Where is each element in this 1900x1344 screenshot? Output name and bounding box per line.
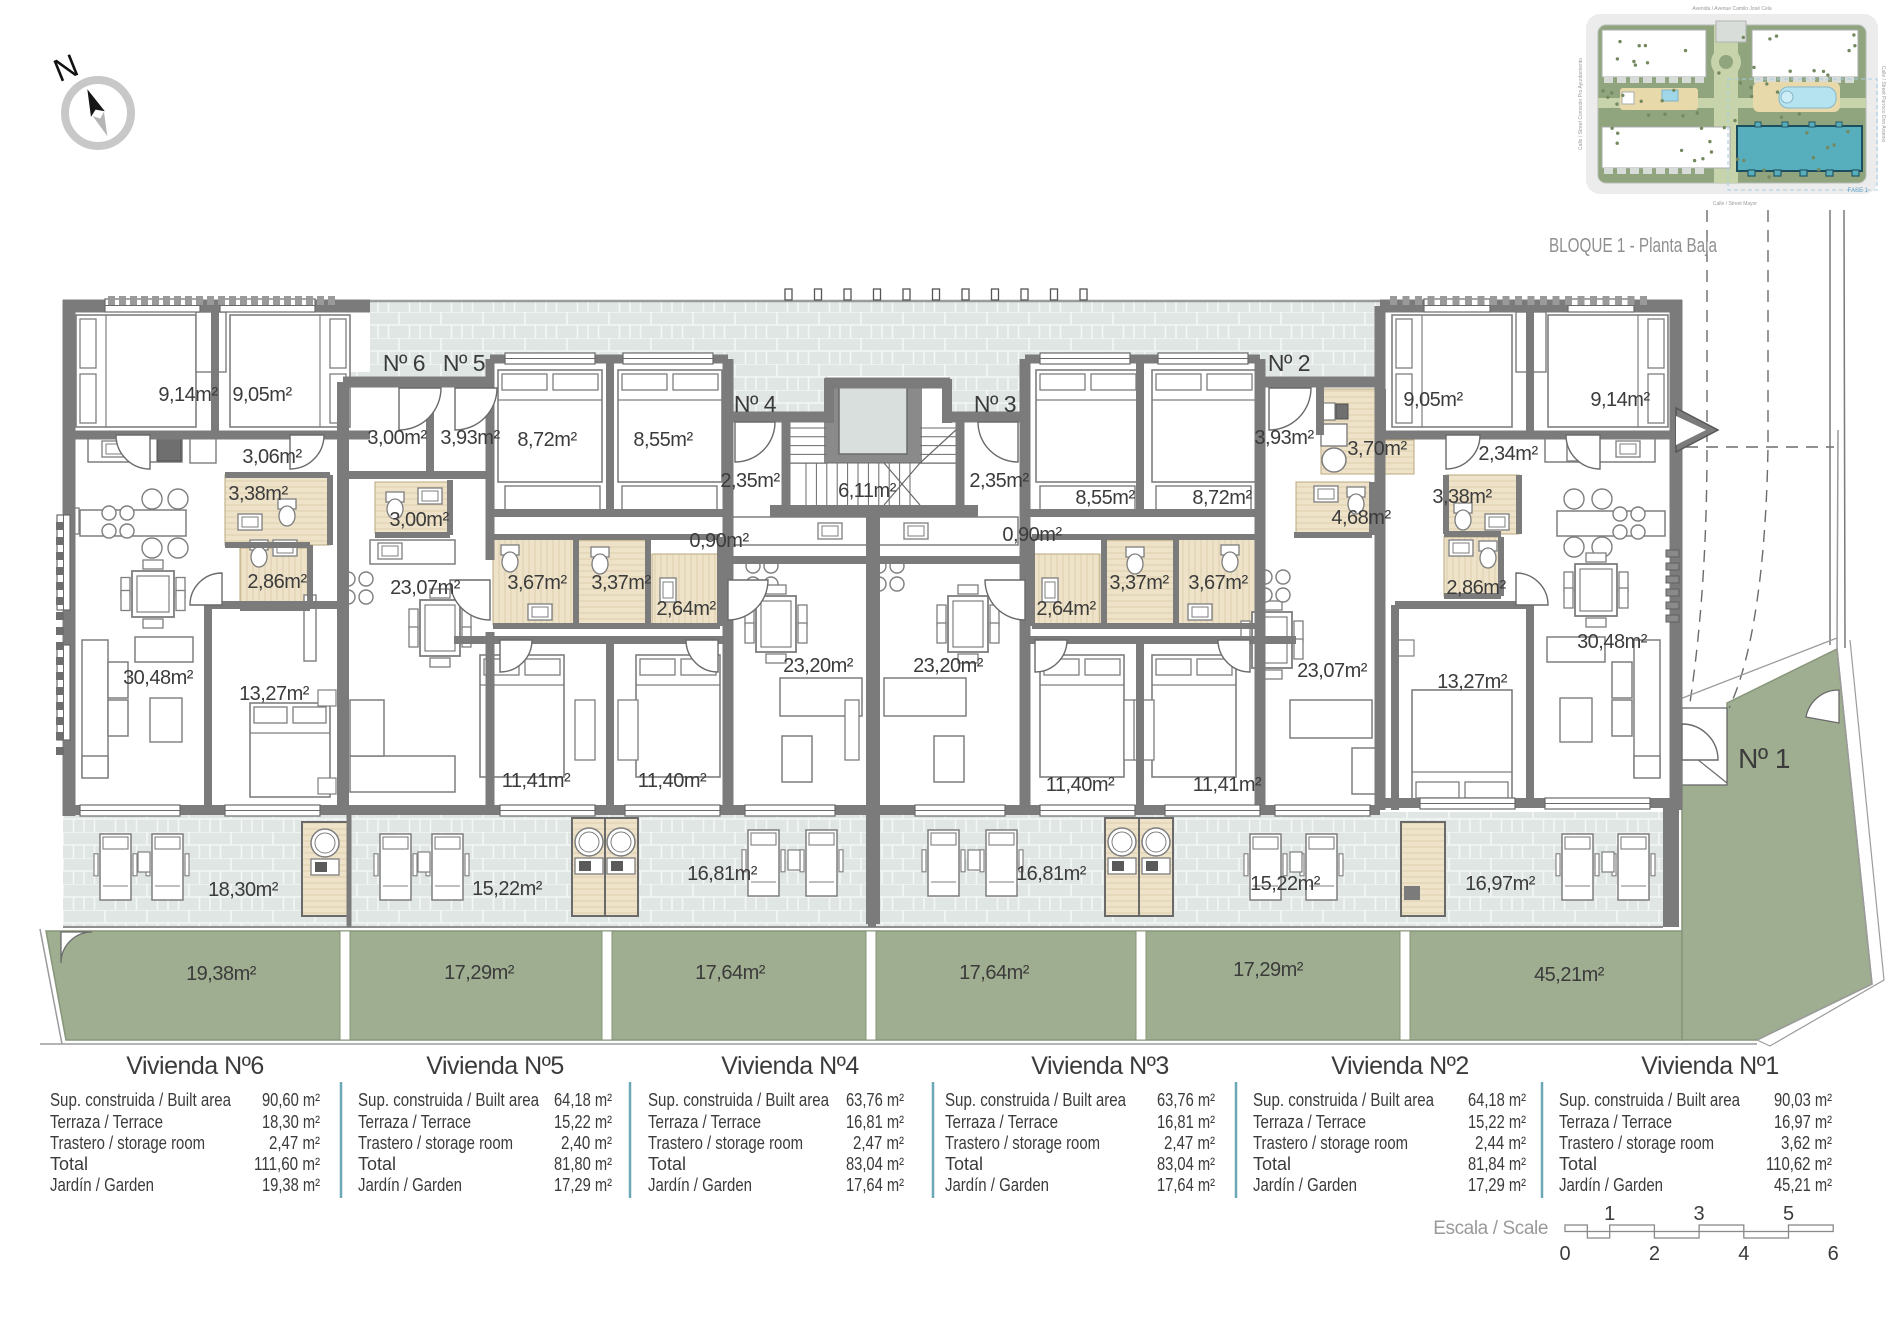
svg-text:64,18 m²: 64,18 m² xyxy=(1468,1090,1526,1110)
svg-text:3: 3 xyxy=(1694,1203,1705,1225)
svg-text:3,67m²: 3,67m² xyxy=(507,572,567,594)
svg-text:2,34m²: 2,34m² xyxy=(1478,443,1538,465)
svg-text:4: 4 xyxy=(1738,1243,1749,1265)
svg-text:0,90m²: 0,90m² xyxy=(689,530,749,552)
svg-text:83,04 m²: 83,04 m² xyxy=(846,1154,904,1174)
svg-text:18,30 m²: 18,30 m² xyxy=(262,1112,320,1132)
svg-text:15,22 m²: 15,22 m² xyxy=(1468,1112,1526,1132)
svg-text:Vivienda Nº2: Vivienda Nº2 xyxy=(1331,1052,1468,1080)
svg-text:16,81m²: 16,81m² xyxy=(687,863,758,885)
svg-text:0: 0 xyxy=(1559,1243,1570,1265)
svg-text:3,67m²: 3,67m² xyxy=(1188,572,1248,594)
svg-text:Jardín / Garden: Jardín / Garden xyxy=(648,1175,752,1195)
svg-text:17,29 m²: 17,29 m² xyxy=(1468,1175,1526,1195)
svg-text:Vivienda Nº5: Vivienda Nº5 xyxy=(426,1052,563,1080)
svg-text:6: 6 xyxy=(1828,1243,1839,1265)
svg-text:6,11m²: 6,11m² xyxy=(838,480,897,502)
svg-text:3,93m²: 3,93m² xyxy=(440,427,500,449)
svg-text:4,68m²: 4,68m² xyxy=(1331,507,1391,529)
svg-text:Terraza / Terrace: Terraza / Terrace xyxy=(1559,1112,1672,1132)
svg-text:Calle / Street Comisión Pro Ay: Calle / Street Comisión Pro Ayuntamiento xyxy=(1578,58,1584,150)
svg-text:9,05m²: 9,05m² xyxy=(232,384,292,406)
svg-text:2,40 m²: 2,40 m² xyxy=(561,1133,612,1153)
svg-text:2,64m²: 2,64m² xyxy=(656,598,716,620)
svg-text:23,20m²: 23,20m² xyxy=(783,655,854,677)
svg-text:FASE 1: FASE 1 xyxy=(1848,188,1869,194)
svg-text:23,07m²: 23,07m² xyxy=(390,577,461,599)
svg-text:8,55m²: 8,55m² xyxy=(633,429,693,451)
svg-text:17,64m²: 17,64m² xyxy=(959,962,1030,984)
svg-text:Jardín / Garden: Jardín / Garden xyxy=(945,1175,1049,1195)
svg-text:8,72m²: 8,72m² xyxy=(517,429,577,451)
svg-text:Trastero / storage room: Trastero / storage room xyxy=(358,1133,513,1153)
svg-text:Vivienda Nº1: Vivienda Nº1 xyxy=(1641,1052,1778,1080)
svg-text:17,29 m²: 17,29 m² xyxy=(554,1175,612,1195)
svg-text:Sup. construida / Built area: Sup. construida / Built area xyxy=(1559,1090,1741,1110)
svg-text:2,47 m²: 2,47 m² xyxy=(1164,1133,1215,1153)
svg-text:16,97 m²: 16,97 m² xyxy=(1774,1112,1832,1132)
svg-text:90,60 m²: 90,60 m² xyxy=(262,1090,320,1110)
svg-text:2,47 m²: 2,47 m² xyxy=(853,1133,904,1153)
svg-text:Nº 1: Nº 1 xyxy=(1738,743,1790,774)
svg-text:11,41m²: 11,41m² xyxy=(502,770,571,792)
svg-text:23,20m²: 23,20m² xyxy=(913,655,984,677)
svg-text:Nº 4: Nº 4 xyxy=(734,391,777,417)
svg-text:Total: Total xyxy=(50,1154,88,1174)
svg-text:Nº 2: Nº 2 xyxy=(1268,350,1310,376)
svg-text:BLOQUE 1 - Planta Baja: BLOQUE 1 - Planta Baja xyxy=(1549,235,1718,257)
svg-text:3,38m²: 3,38m² xyxy=(228,483,288,505)
svg-text:Terraza / Terrace: Terraza / Terrace xyxy=(358,1112,471,1132)
svg-text:3,00m²: 3,00m² xyxy=(367,427,427,449)
svg-text:11,40m²: 11,40m² xyxy=(1046,774,1115,796)
svg-text:45,21 m²: 45,21 m² xyxy=(1774,1175,1832,1195)
svg-text:Terraza / Terrace: Terraza / Terrace xyxy=(648,1112,761,1132)
svg-text:Nº 5: Nº 5 xyxy=(443,350,485,376)
svg-text:13,27m²: 13,27m² xyxy=(239,683,310,705)
svg-text:Total: Total xyxy=(945,1154,983,1174)
svg-text:15,22 m²: 15,22 m² xyxy=(554,1112,612,1132)
svg-text:3,37m²: 3,37m² xyxy=(591,572,651,594)
svg-text:2,35m²: 2,35m² xyxy=(969,470,1029,492)
svg-text:45,21m²: 45,21m² xyxy=(1534,964,1605,986)
svg-text:2,86m²: 2,86m² xyxy=(247,571,307,593)
svg-text:Total: Total xyxy=(1559,1154,1597,1174)
svg-text:16,81m²: 16,81m² xyxy=(1016,863,1087,885)
svg-text:11,41m²: 11,41m² xyxy=(1193,774,1262,796)
svg-text:2,86m²: 2,86m² xyxy=(1446,577,1506,599)
svg-text:11,40m²: 11,40m² xyxy=(638,770,707,792)
svg-text:18,30m²: 18,30m² xyxy=(208,879,279,901)
svg-text:23,07m²: 23,07m² xyxy=(1297,660,1368,682)
svg-text:Sup. construida / Built area: Sup. construida / Built area xyxy=(358,1090,540,1110)
svg-text:30,48m²: 30,48m² xyxy=(123,667,194,689)
svg-text:0,90m²: 0,90m² xyxy=(1002,524,1062,546)
svg-text:3,93m²: 3,93m² xyxy=(1254,427,1314,449)
svg-text:Jardín / Garden: Jardín / Garden xyxy=(1559,1175,1663,1195)
svg-text:8,55m²: 8,55m² xyxy=(1075,487,1135,509)
svg-text:81,84 m²: 81,84 m² xyxy=(1468,1154,1526,1174)
svg-text:Total: Total xyxy=(358,1154,396,1174)
svg-text:19,38m²: 19,38m² xyxy=(186,963,257,985)
svg-text:Sup. construida / Built area: Sup. construida / Built area xyxy=(1253,1090,1435,1110)
svg-text:Terraza / Terrace: Terraza / Terrace xyxy=(945,1112,1058,1132)
svg-text:Sup. construida / Built area: Sup. construida / Built area xyxy=(648,1090,830,1110)
svg-text:9,05m²: 9,05m² xyxy=(1403,389,1463,411)
svg-text:16,97m²: 16,97m² xyxy=(1465,873,1536,895)
svg-text:17,64 m²: 17,64 m² xyxy=(1157,1175,1215,1195)
svg-text:2: 2 xyxy=(1649,1243,1660,1265)
svg-text:110,62 m²: 110,62 m² xyxy=(1766,1154,1832,1174)
svg-text:30,48m²: 30,48m² xyxy=(1577,631,1648,653)
svg-text:Escala / Scale: Escala / Scale xyxy=(1433,1218,1548,1239)
svg-text:13,27m²: 13,27m² xyxy=(1437,671,1508,693)
svg-text:2,64m²: 2,64m² xyxy=(1036,598,1096,620)
svg-text:3,00m²: 3,00m² xyxy=(389,509,449,531)
svg-text:15,22m²: 15,22m² xyxy=(472,878,543,900)
svg-text:3,62 m²: 3,62 m² xyxy=(1781,1133,1832,1153)
svg-text:64,18 m²: 64,18 m² xyxy=(554,1090,612,1110)
svg-text:3,38m²: 3,38m² xyxy=(1432,486,1492,508)
svg-text:Trastero / storage room: Trastero / storage room xyxy=(50,1133,205,1153)
svg-text:Terraza / Terrace: Terraza / Terrace xyxy=(50,1112,163,1132)
svg-text:Trastero / storage room: Trastero / storage room xyxy=(945,1133,1100,1153)
svg-text:5: 5 xyxy=(1783,1203,1794,1225)
svg-text:3,37m²: 3,37m² xyxy=(1109,572,1169,594)
svg-text:2,47 m²: 2,47 m² xyxy=(269,1133,320,1153)
svg-text:Jardín / Garden: Jardín / Garden xyxy=(358,1175,462,1195)
svg-text:63,76 m²: 63,76 m² xyxy=(1157,1090,1215,1110)
svg-text:90,03 m²: 90,03 m² xyxy=(1774,1090,1832,1110)
svg-text:Terraza / Terrace: Terraza / Terrace xyxy=(1253,1112,1366,1132)
svg-text:2,44 m²: 2,44 m² xyxy=(1475,1133,1526,1153)
svg-text:Vivienda Nº4: Vivienda Nº4 xyxy=(721,1052,859,1080)
svg-text:Total: Total xyxy=(648,1154,686,1174)
svg-text:63,76 m²: 63,76 m² xyxy=(846,1090,904,1110)
svg-text:Jardín / Garden: Jardín / Garden xyxy=(1253,1175,1357,1195)
svg-text:9,14m²: 9,14m² xyxy=(158,384,218,406)
svg-text:17,64 m²: 17,64 m² xyxy=(846,1175,904,1195)
svg-text:17,29m²: 17,29m² xyxy=(444,962,515,984)
svg-text:Avenida / Avenue Camilo José C: Avenida / Avenue Camilo José Cela xyxy=(1692,6,1772,12)
svg-text:Total: Total xyxy=(1253,1154,1291,1174)
svg-text:16,81 m²: 16,81 m² xyxy=(846,1112,904,1132)
svg-text:3,06m²: 3,06m² xyxy=(242,446,302,468)
svg-text:3,70m²: 3,70m² xyxy=(1347,438,1407,460)
svg-text:Nº 6: Nº 6 xyxy=(383,350,425,376)
svg-text:8,72m²: 8,72m² xyxy=(1192,487,1252,509)
svg-text:17,64m²: 17,64m² xyxy=(695,962,766,984)
svg-text:Sup. construida / Built area: Sup. construida / Built area xyxy=(945,1090,1127,1110)
svg-text:Trastero / storage room: Trastero / storage room xyxy=(648,1133,803,1153)
svg-text:17,29m²: 17,29m² xyxy=(1233,959,1304,981)
svg-text:1: 1 xyxy=(1604,1203,1615,1225)
svg-text:Trastero / storage room: Trastero / storage room xyxy=(1559,1133,1714,1153)
svg-text:15,22m²: 15,22m² xyxy=(1250,873,1321,895)
svg-text:Trastero / storage room: Trastero / storage room xyxy=(1253,1133,1408,1153)
svg-text:Vivienda Nº6: Vivienda Nº6 xyxy=(126,1052,263,1080)
svg-text:2,35m²: 2,35m² xyxy=(720,470,780,492)
svg-text:9,14m²: 9,14m² xyxy=(1590,389,1650,411)
svg-text:81,80 m²: 81,80 m² xyxy=(554,1154,612,1174)
svg-text:111,60 m²: 111,60 m² xyxy=(254,1154,320,1174)
svg-text:16,81 m²: 16,81 m² xyxy=(1157,1112,1215,1132)
svg-text:Calle / Street Párroco Don Ars: Calle / Street Párroco Don Arsenio xyxy=(1880,66,1886,143)
svg-text:Jardín / Garden: Jardín / Garden xyxy=(50,1175,154,1195)
svg-text:Calle / Street Mayor: Calle / Street Mayor xyxy=(1713,201,1758,207)
svg-text:Vivienda Nº3: Vivienda Nº3 xyxy=(1031,1052,1168,1080)
svg-text:19,38 m²: 19,38 m² xyxy=(262,1175,320,1195)
svg-text:Nº 3: Nº 3 xyxy=(974,391,1016,417)
svg-text:83,04 m²: 83,04 m² xyxy=(1157,1154,1215,1174)
svg-text:Sup. construida / Built area: Sup. construida / Built area xyxy=(50,1090,232,1110)
